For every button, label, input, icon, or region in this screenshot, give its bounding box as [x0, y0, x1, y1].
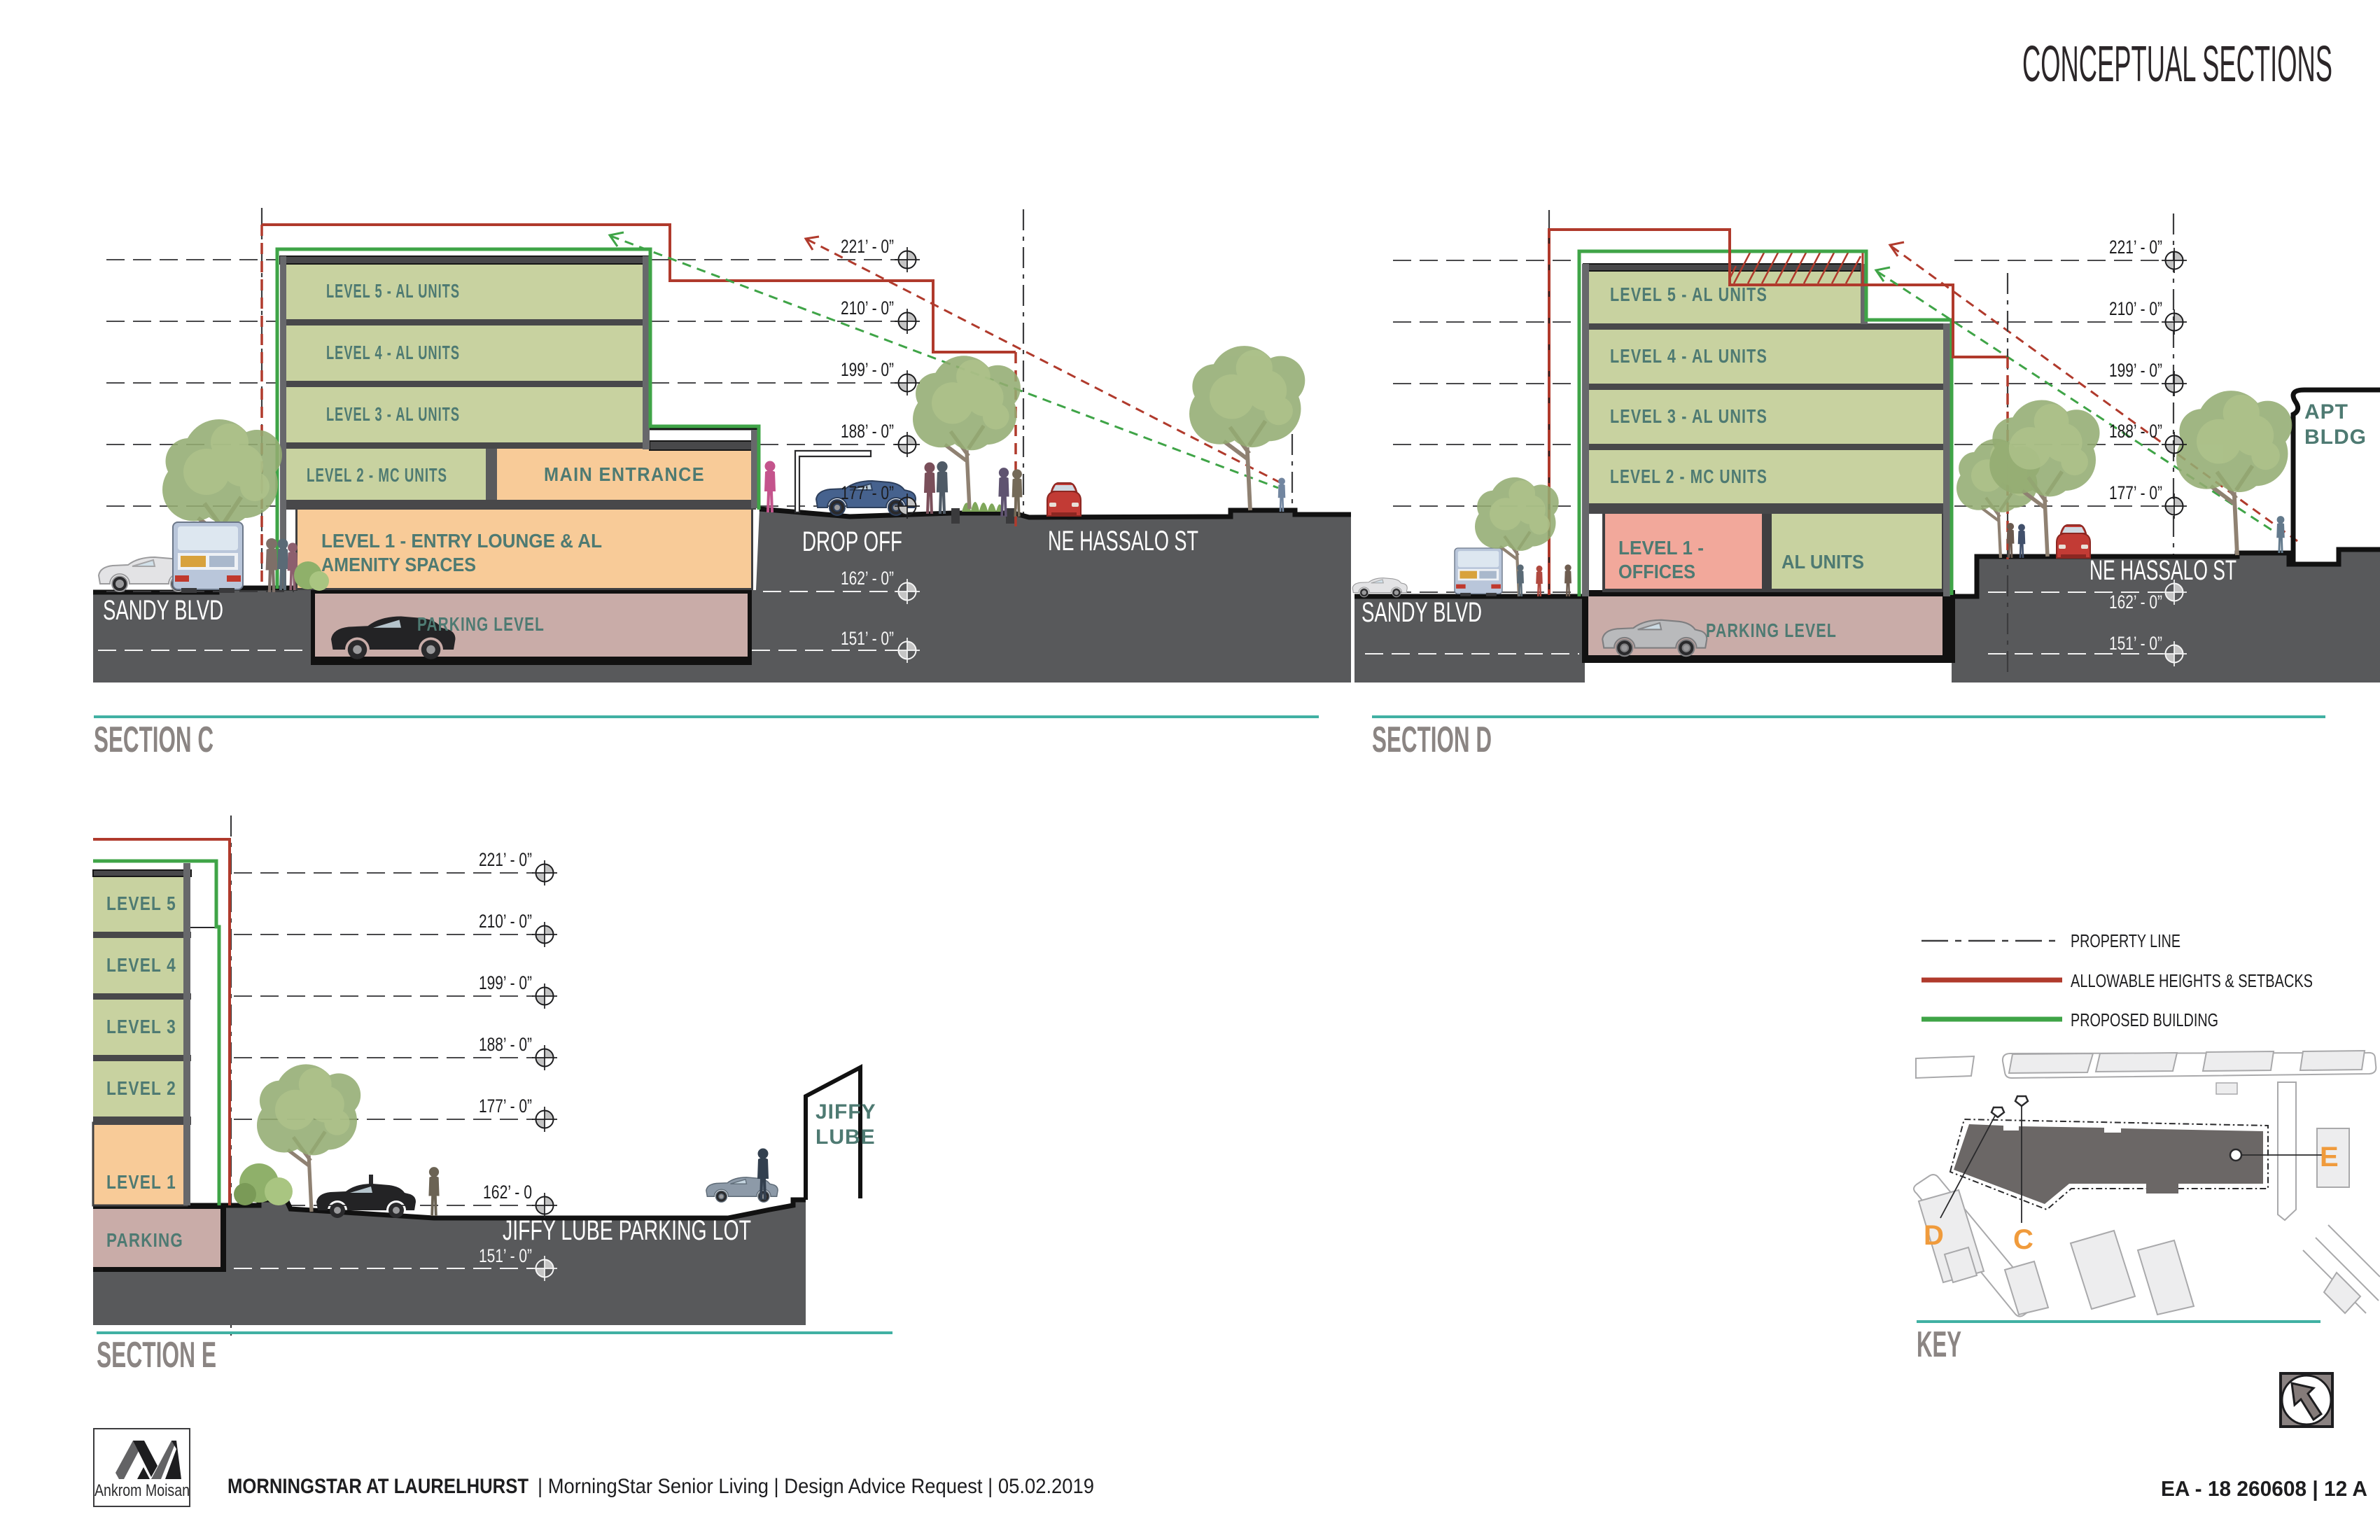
svg-text:SECTION E: SECTION E: [97, 1335, 216, 1375]
svg-text:210’ - 0”: 210’ - 0”: [2109, 298, 2162, 319]
svg-text:188’ - 0”: 188’ - 0”: [2109, 421, 2162, 442]
svg-text:SECTION D: SECTION D: [1372, 720, 1492, 760]
svg-text:ALLOWABLE HEIGHTS & SETBACKS: ALLOWABLE HEIGHTS & SETBACKS: [2071, 970, 2313, 991]
svg-text:162’ - 0: 162’ - 0: [483, 1182, 532, 1203]
svg-text:177’ - 0”: 177’ - 0”: [479, 1095, 532, 1116]
svg-text:LEVEL 4 - AL UNITS: LEVEL 4 - AL UNITS: [326, 342, 460, 363]
svg-text:APT: APT: [2304, 400, 2348, 423]
svg-text:E: E: [2320, 1142, 2339, 1172]
svg-text:SANDY BLVD: SANDY BLVD: [1361, 597, 1482, 628]
svg-text:LEVEL 3: LEVEL 3: [106, 1016, 176, 1037]
svg-text:OFFICES: OFFICES: [1618, 561, 1695, 582]
svg-text:162’ - 0”: 162’ - 0”: [841, 568, 894, 589]
svg-text:JIFFY LUBE PARKING LOT: JIFFY LUBE PARKING LOT: [503, 1215, 751, 1246]
svg-text:LEVEL 2 - MC UNITS: LEVEL 2 - MC UNITS: [307, 464, 447, 486]
svg-text:PROPERTY LINE: PROPERTY LINE: [2071, 930, 2180, 951]
svg-text:LEVEL 1 -: LEVEL 1 -: [1618, 537, 1704, 559]
svg-text:LEVEL 1: LEVEL 1: [106, 1171, 176, 1193]
svg-text:221’ - 0”: 221’ - 0”: [479, 849, 532, 870]
svg-text:221’ - 0”: 221’ - 0”: [2109, 237, 2162, 258]
svg-text:SECTION C: SECTION C: [94, 720, 213, 760]
svg-text:LEVEL 4 - AL UNITS: LEVEL 4 - AL UNITS: [1610, 345, 1767, 367]
svg-text:151’ - 0”: 151’ - 0”: [2109, 633, 2162, 654]
svg-text:199’ - 0”: 199’ - 0”: [479, 972, 532, 993]
svg-text:NE HASSALO ST: NE HASSALO ST: [1048, 526, 1198, 556]
svg-text:LEVEL 2: LEVEL 2: [106, 1077, 176, 1099]
svg-text:AMENITY SPACES: AMENITY SPACES: [321, 554, 476, 575]
svg-text:LEVEL 5 - AL UNITS: LEVEL 5 - AL UNITS: [326, 280, 460, 302]
svg-text:221’ - 0”: 221’ - 0”: [841, 236, 894, 257]
svg-text:BLDG: BLDG: [2304, 426, 2367, 449]
svg-text:NE HASSALO ST: NE HASSALO ST: [2089, 555, 2236, 586]
svg-text:EA - 18 260608 | 12 A: EA - 18 260608 | 12 A: [2161, 1476, 2367, 1501]
svg-text:188’ - 0”: 188’ - 0”: [841, 421, 894, 442]
svg-text:MAIN ENTRANCE: MAIN ENTRANCE: [544, 463, 705, 485]
svg-text:PARKING LEVEL: PARKING LEVEL: [417, 613, 545, 635]
svg-text:LEVEL 3 - AL UNITS: LEVEL 3 - AL UNITS: [1610, 405, 1767, 427]
svg-text:188’ - 0”: 188’ - 0”: [479, 1034, 532, 1055]
svg-text:151’ - 0”: 151’ - 0”: [479, 1245, 532, 1266]
svg-text:LUBE: LUBE: [815, 1126, 876, 1149]
svg-text:LEVEL 5: LEVEL 5: [106, 892, 176, 914]
svg-text:PARKING: PARKING: [106, 1229, 183, 1251]
svg-text:199’ - 0”: 199’ - 0”: [841, 359, 894, 380]
svg-text:PROPOSED BUILDING: PROPOSED BUILDING: [2071, 1009, 2218, 1030]
svg-text:AL UNITS: AL UNITS: [1781, 551, 1864, 573]
svg-text:177’ - 0”: 177’ - 0”: [2109, 482, 2162, 503]
svg-text:CONCEPTUAL SECTIONS: CONCEPTUAL SECTIONS: [2022, 36, 2332, 92]
svg-text:151’ - 0”: 151’ - 0”: [841, 628, 894, 649]
svg-text:KEY: KEY: [1917, 1324, 1961, 1365]
svg-text:210’ - 0”: 210’ - 0”: [479, 911, 532, 932]
svg-text:| MorningStar Senior Living |: | MorningStar Senior Living | Design Adv…: [538, 1475, 1094, 1498]
svg-text:210’ - 0”: 210’ - 0”: [841, 297, 894, 318]
svg-text:C: C: [2013, 1224, 2033, 1255]
svg-text:D: D: [1924, 1220, 1944, 1251]
svg-text:SANDY BLVD: SANDY BLVD: [103, 595, 223, 626]
svg-text:162’ - 0”: 162’ - 0”: [2109, 591, 2162, 612]
svg-text:LEVEL 5 - AL UNITS: LEVEL 5 - AL UNITS: [1610, 283, 1767, 305]
svg-text:PARKING LEVEL: PARKING LEVEL: [1706, 619, 1837, 641]
svg-text:LEVEL 2 - MC UNITS: LEVEL 2 - MC UNITS: [1610, 465, 1767, 487]
svg-text:LEVEL 4: LEVEL 4: [106, 954, 176, 976]
svg-text:DROP OFF: DROP OFF: [802, 526, 902, 557]
svg-text:LEVEL 3 - AL UNITS: LEVEL 3 - AL UNITS: [326, 403, 460, 425]
svg-text:177’ - 0”: 177’ - 0”: [841, 482, 894, 503]
svg-text:Ankrom Moisan: Ankrom Moisan: [94, 1481, 190, 1500]
svg-text:199’ - 0”: 199’ - 0”: [2109, 360, 2162, 381]
svg-text:JIFFY: JIFFY: [815, 1100, 876, 1123]
svg-text:LEVEL 1 - ENTRY LOUNGE & AL: LEVEL 1 - ENTRY LOUNGE & AL: [321, 530, 602, 552]
svg-text:MORNINGSTAR AT LAURELHURST: MORNINGSTAR AT LAURELHURST: [227, 1475, 528, 1498]
